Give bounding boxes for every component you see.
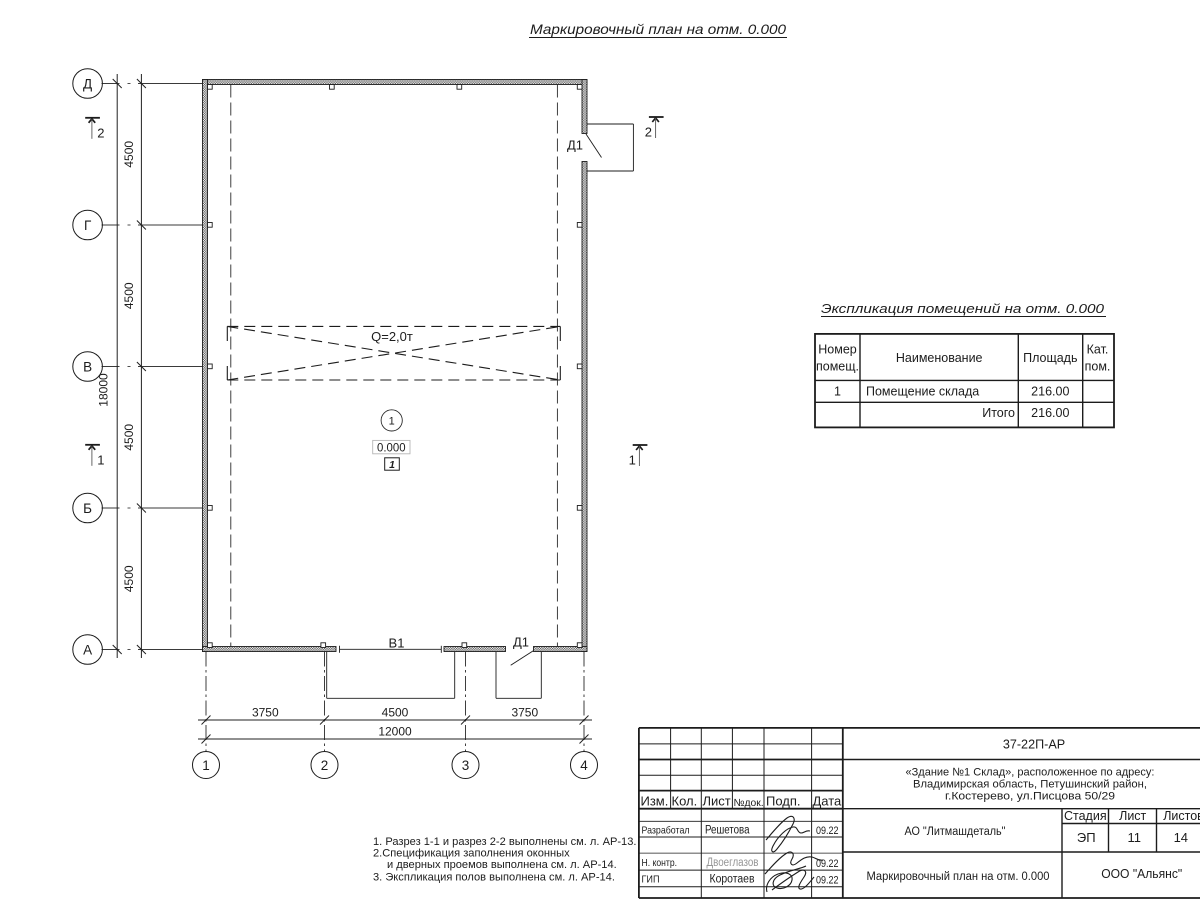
svg-text:11: 11 [1127, 830, 1141, 845]
svg-text:Решетова: Решетова [705, 825, 750, 837]
svg-text:3750: 3750 [252, 706, 279, 720]
svg-text:14: 14 [1174, 830, 1188, 845]
svg-text:Кат.: Кат. [1087, 343, 1109, 357]
svg-text:Изм.: Изм. [641, 794, 669, 809]
svg-text:АО "Литмашдеталь": АО "Литмашдеталь" [905, 826, 1006, 838]
svg-text:1. Разрез 1-1 и разрез 2-2 вып: 1. Разрез 1-1 и разрез 2-2 выполнены см.… [373, 836, 636, 848]
svg-text:Кол.: Кол. [672, 794, 698, 809]
svg-text:Лист: Лист [1119, 809, 1146, 823]
svg-text:2.Спецификация заполнения окон: 2.Спецификация заполнения оконных [373, 848, 570, 860]
svg-text:2: 2 [97, 125, 104, 140]
svg-text:г.Костерево, ул.Писцова 50/29: г.Костерево, ул.Писцова 50/29 [945, 791, 1115, 803]
svg-text:Маркировочный план на отм. 0.0: Маркировочный план на отм. 0.000 [530, 21, 786, 37]
svg-text:Наименование: Наименование [896, 351, 983, 365]
svg-text:Д1: Д1 [567, 138, 583, 153]
svg-text:ГИП: ГИП [642, 874, 660, 886]
svg-text:18000: 18000 [97, 373, 111, 407]
svg-text:«Здание №1 Склад», расположенн: «Здание №1 Склад», расположенное по адре… [906, 767, 1155, 779]
svg-text:09.22: 09.22 [816, 825, 839, 837]
svg-text:4500: 4500 [122, 565, 136, 592]
svg-text:1: 1 [97, 452, 104, 467]
svg-text:А: А [83, 643, 92, 658]
svg-text:2: 2 [321, 758, 329, 773]
svg-text:Владимирская область, Петушинс: Владимирская область, Петушинский район, [913, 779, 1147, 791]
svg-text:1: 1 [629, 453, 636, 468]
svg-text:4: 4 [580, 758, 588, 773]
svg-text:и дверных проемов выполнена см: и дверных проемов выполнена см. л. АР-14… [387, 859, 617, 871]
svg-text:Коротаев: Коротаев [710, 874, 755, 886]
svg-text:Листов: Листов [1163, 809, 1200, 823]
svg-text:4500: 4500 [122, 282, 136, 309]
svg-text:Г: Г [84, 218, 92, 233]
svg-text:помещ.: помещ. [816, 360, 859, 374]
svg-text:12000: 12000 [378, 725, 412, 739]
svg-text:4500: 4500 [122, 141, 136, 168]
svg-text:Н. контр.: Н. контр. [642, 857, 678, 869]
svg-text:1: 1 [389, 459, 395, 471]
svg-text:Q=2,0т: Q=2,0т [371, 329, 413, 344]
svg-text:В: В [83, 360, 92, 375]
svg-text:1: 1 [389, 416, 395, 428]
svg-text:3. Экспликация полов выполнена: 3. Экспликация полов выполнена см. л. АР… [373, 872, 615, 884]
svg-text:3: 3 [462, 758, 470, 773]
svg-text:216.00: 216.00 [1031, 385, 1069, 399]
svg-text:Б: Б [83, 501, 92, 516]
svg-text:Маркировочный план на отм. 0.0: Маркировочный план на отм. 0.000 [867, 871, 1050, 883]
svg-text:Площадь: Площадь [1023, 351, 1077, 365]
svg-text:Подп.: Подп. [766, 794, 801, 809]
svg-text:пом.: пом. [1085, 360, 1111, 374]
svg-text:ЭП: ЭП [1077, 830, 1096, 845]
svg-text:09.22: 09.22 [816, 875, 839, 887]
svg-text:Двоеглазов: Двоеглазов [707, 857, 759, 869]
svg-text:3750: 3750 [511, 706, 538, 720]
svg-text:1: 1 [834, 385, 841, 399]
svg-text:Экспликация помещений на отм.: Экспликация помещений на отм. 0.000 [821, 301, 1105, 316]
svg-text:2: 2 [645, 125, 652, 140]
svg-text:Д1: Д1 [513, 635, 529, 650]
svg-text:Помещение склада: Помещение склада [866, 385, 979, 399]
svg-text:216.00: 216.00 [1031, 406, 1069, 420]
svg-text:Д: Д [83, 77, 92, 92]
svg-text:Разработал: Разработал [642, 825, 690, 837]
svg-text:4500: 4500 [382, 706, 409, 720]
svg-text:ООО "Альянс": ООО "Альянс" [1101, 867, 1182, 881]
svg-text:Итого: Итого [982, 406, 1015, 420]
svg-text:37-22П-АР: 37-22П-АР [1003, 738, 1065, 752]
svg-text:1: 1 [202, 758, 210, 773]
svg-text:В1: В1 [389, 636, 405, 651]
svg-text:4500: 4500 [122, 424, 136, 451]
svg-text:Лист: Лист [703, 794, 731, 809]
svg-text:Дата: Дата [813, 794, 843, 809]
svg-text:0.000: 0.000 [377, 442, 406, 454]
svg-text:№док.: №док. [734, 798, 764, 809]
svg-text:Номер: Номер [818, 343, 857, 357]
svg-text:Стадия: Стадия [1064, 809, 1107, 823]
